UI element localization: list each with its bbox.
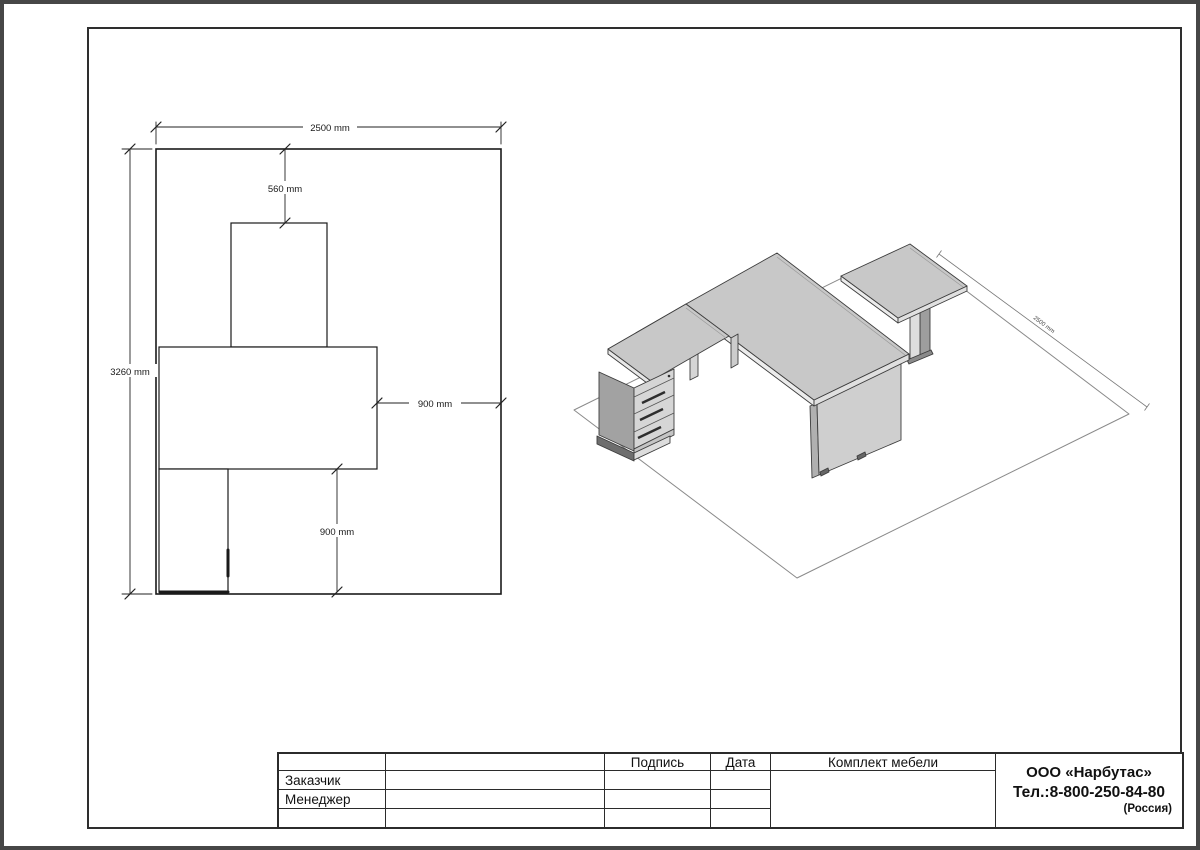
dim-offset-top-label: 560 mm <box>268 184 302 195</box>
dim-depth-left-label: 3260 mm <box>110 367 150 378</box>
plan-view: 2500 mm 3260 mm 560 mm <box>103 120 506 599</box>
title-block-cell <box>386 754 605 771</box>
pedestal-plan <box>159 469 228 592</box>
manager-signature-cell <box>605 790 711 809</box>
manager-row-label: Менеджер <box>279 790 386 809</box>
title-block-cell <box>605 809 711 827</box>
desk-left-support <box>731 334 738 368</box>
keyhole <box>668 375 671 378</box>
manager-value-cell <box>386 790 605 809</box>
title-block-cell <box>279 754 386 771</box>
company-country: (Россия) <box>1124 802 1177 816</box>
document-title: Комплект мебели <box>771 754 996 771</box>
customer-row-label: Заказчик <box>279 771 386 790</box>
title-block-cell <box>711 809 771 827</box>
desk-main-plan <box>159 347 377 469</box>
customer-value-cell <box>386 771 605 790</box>
company-info: ООО «Нарбутас» Тел.:8-800-250-84-80 (Рос… <box>996 754 1182 827</box>
signature-column-header: Подпись <box>605 754 711 771</box>
title-block-cell <box>386 809 605 827</box>
manager-date-cell <box>711 790 771 809</box>
title-block: Подпись Дата Комплект мебели ООО «Нарбут… <box>277 752 1184 829</box>
customer-date-cell <box>711 771 771 790</box>
company-name: ООО «Нарбутас» <box>1026 764 1152 783</box>
iso-view: 2500 mm <box>574 244 1150 578</box>
dim-clearance-right-label: 900 mm <box>418 399 452 410</box>
title-block-cell <box>279 809 386 827</box>
customer-signature-cell <box>605 771 711 790</box>
company-phone: Тел.:8-800-250-84-80 <box>1013 783 1165 802</box>
desk-return-plan <box>231 223 327 347</box>
title-block-cell <box>771 771 996 827</box>
dim-width-top-label: 2500 mm <box>310 123 350 134</box>
drawing-canvas: 2500 mm 3260 mm 560 mm <box>4 4 1200 850</box>
dim-clearance-bottom-label: 900 mm <box>320 527 354 538</box>
drawing-sheet: 2500 mm 3260 mm 560 mm <box>0 0 1200 850</box>
date-column-header: Дата <box>711 754 771 771</box>
